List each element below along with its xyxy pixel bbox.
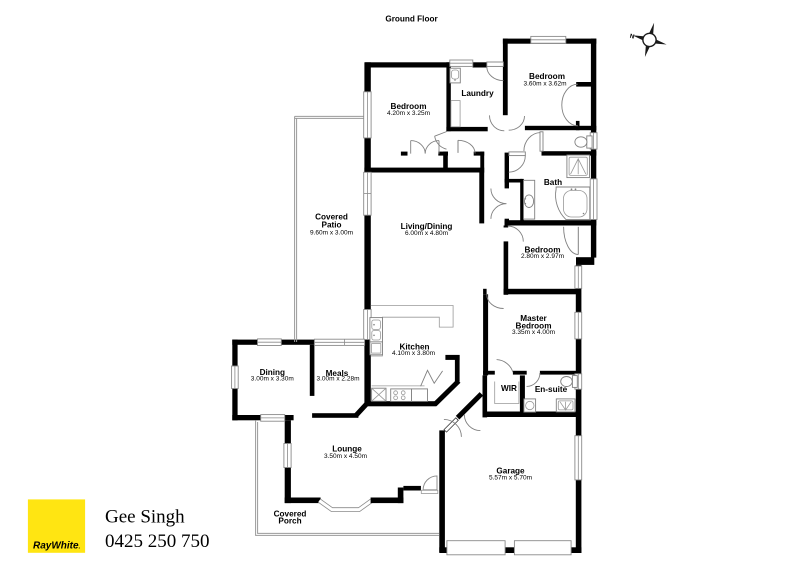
svg-text:3.60m x 3.62m: 3.60m x 3.62m bbox=[524, 81, 567, 88]
svg-text:Patio: Patio bbox=[321, 221, 341, 230]
svg-text:Bath: Bath bbox=[544, 178, 562, 187]
svg-text:3.35m x 4.00m: 3.35m x 4.00m bbox=[512, 329, 555, 336]
svg-text:6.00m x 4.80m: 6.00m x 4.80m bbox=[405, 230, 448, 237]
svg-text:RayWhite.: RayWhite. bbox=[33, 541, 81, 552]
svg-text:3.50m x 4.50m: 3.50m x 4.50m bbox=[324, 453, 367, 460]
svg-text:Bedroom: Bedroom bbox=[529, 72, 565, 81]
svg-text:Ground Floor: Ground Floor bbox=[385, 15, 438, 24]
svg-text:Porch: Porch bbox=[278, 516, 301, 525]
svg-text:4.20m x 3.25m: 4.20m x 3.25m bbox=[387, 110, 430, 117]
svg-text:4.10m x 3.80m: 4.10m x 3.80m bbox=[392, 350, 435, 357]
svg-text:En-suite: En-suite bbox=[535, 385, 568, 394]
svg-text:2.80m x 2.97m: 2.80m x 2.97m bbox=[521, 253, 564, 260]
svg-text:0425 250 750: 0425 250 750 bbox=[105, 531, 210, 552]
svg-text:5.57m x 5.70m: 5.57m x 5.70m bbox=[489, 474, 532, 481]
svg-text:Gee Singh: Gee Singh bbox=[105, 507, 185, 528]
svg-text:3.00m x 2.28m: 3.00m x 2.28m bbox=[317, 376, 360, 383]
svg-text:9.60m x 3.00m: 9.60m x 3.00m bbox=[310, 230, 353, 237]
svg-text:3.00m x 3.30m: 3.00m x 3.30m bbox=[251, 376, 294, 383]
svg-text:WIR: WIR bbox=[501, 384, 517, 393]
svg-text:Laundry: Laundry bbox=[461, 89, 494, 98]
